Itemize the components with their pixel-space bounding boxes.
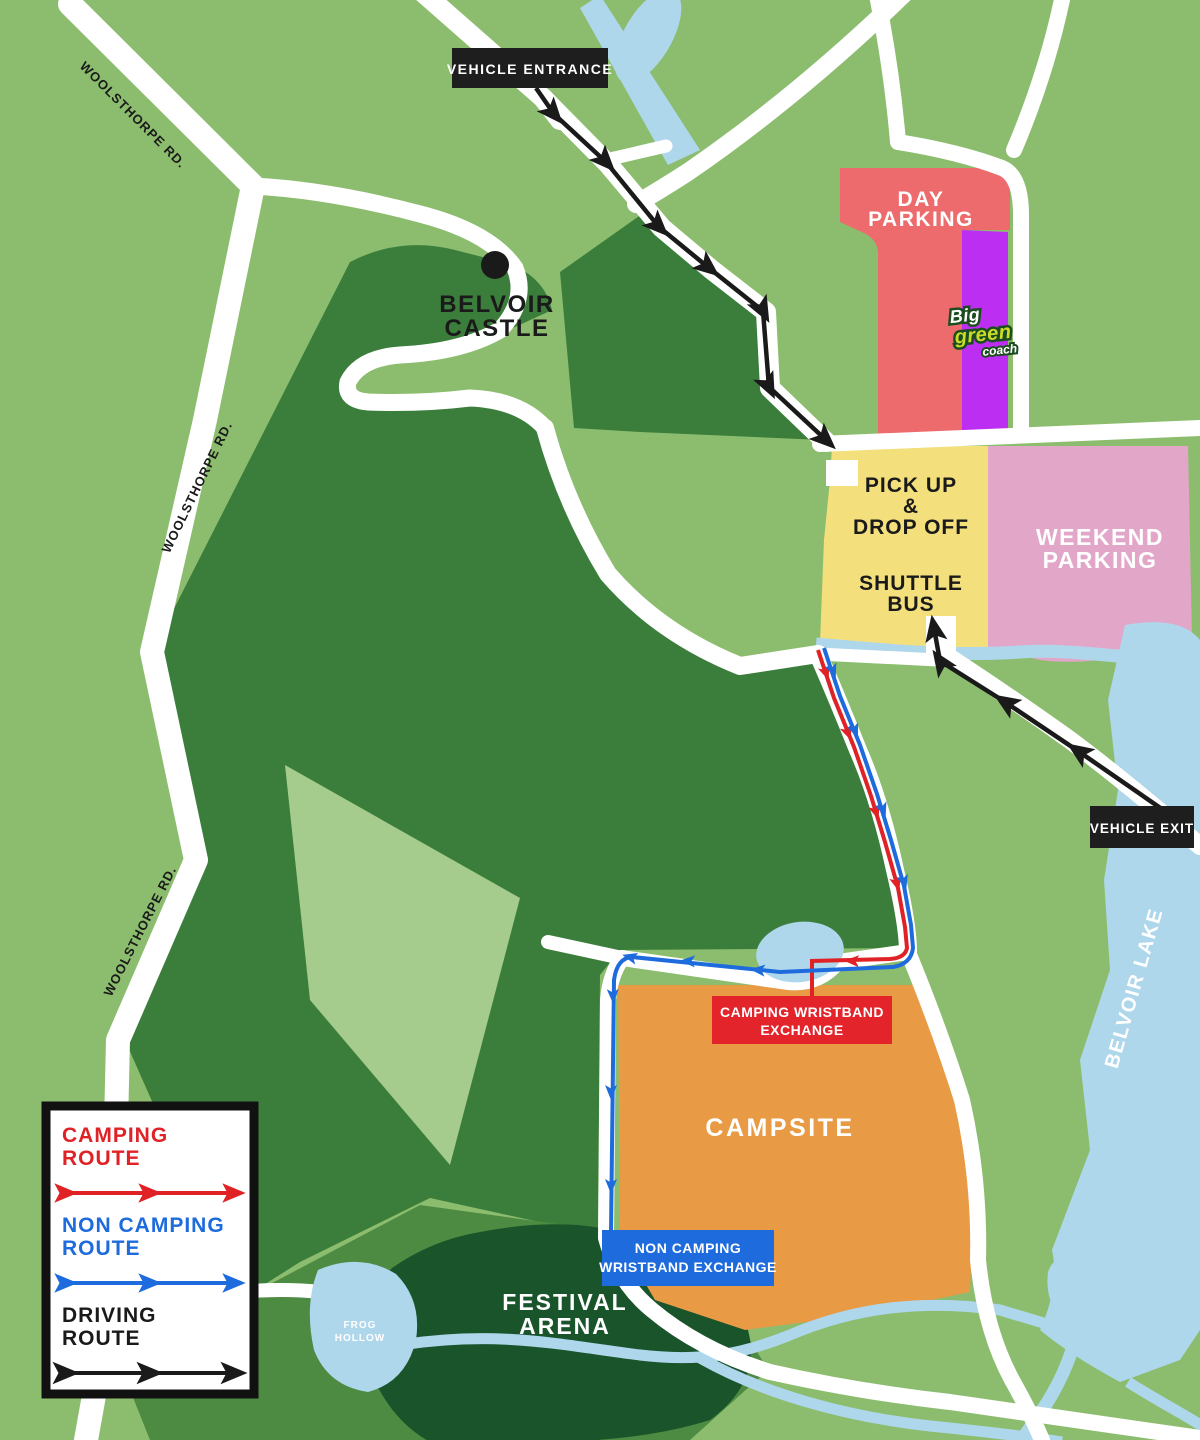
legend-camping-label-line1: CAMPING: [62, 1124, 168, 1147]
legend: CAMPING ROUTE NON CAMPING ROUTE DRIVING …: [46, 1106, 254, 1394]
pickup-label-line3: DROP OFF: [853, 516, 969, 539]
legend-driving-label-line1: DRIVING: [62, 1304, 157, 1327]
non-camping-wristband-label-line1: NON CAMPING: [635, 1240, 742, 1256]
weekend-parking-label-line2: PARKING: [1043, 547, 1158, 573]
legend-non-camping-label-line2: ROUTE: [62, 1237, 141, 1260]
festival-arena-label-line2: ARENA: [519, 1313, 611, 1339]
day-parking-label-line2: PARKING: [868, 208, 974, 231]
vehicle-entrance-label: VEHICLE ENTRANCE: [447, 61, 613, 77]
belvoir-castle-label-line2: CASTLE: [445, 315, 550, 342]
shuttle-bus-label-line2: BUS: [887, 593, 934, 616]
pickup-label-line2: &: [903, 495, 919, 518]
non-camping-wristband-label-line2: WRISTBAND EXCHANGE: [599, 1259, 777, 1275]
shuttle-bus-label-line1: SHUTTLE: [859, 572, 963, 595]
vehicle-exit-label: VEHICLE EXIT: [1090, 821, 1194, 836]
frog-hollow-label-line1: FROG: [344, 1320, 377, 1331]
campsite-label: CAMPSITE: [705, 1114, 854, 1142]
road-exit-connector: [818, 654, 938, 660]
legend-driving-label-line2: ROUTE: [62, 1327, 141, 1350]
pickup-label-line1: PICK UP: [865, 474, 957, 497]
legend-non-camping-label-line1: NON CAMPING: [62, 1214, 225, 1237]
road-stub-pickup-notch: [826, 460, 858, 486]
legend-camping-label-line2: ROUTE: [62, 1147, 141, 1170]
belvoir-castle-dot: [481, 251, 509, 279]
vehicle-entrance-label-box: VEHICLE ENTRANCE: [447, 48, 613, 88]
camping-wristband-box: CAMPING WRISTBAND EXCHANGE: [712, 996, 892, 1044]
non-camping-wristband-box: NON CAMPING WRISTBAND EXCHANGE: [599, 1230, 777, 1286]
festival-site-map: BELVOIR CASTLE DAY PARKING Big green coa…: [0, 0, 1200, 1440]
festival-arena-label-line1: FESTIVAL: [502, 1289, 627, 1315]
camping-wristband-label-line2: EXCHANGE: [760, 1022, 843, 1038]
belvoir-castle-label-line1: BELVOIR: [439, 291, 554, 318]
vehicle-exit-label-box: VEHICLE EXIT: [1090, 806, 1194, 848]
camping-wristband-label-line1: CAMPING WRISTBAND: [720, 1004, 884, 1020]
frog-hollow-label-line2: HOLLOW: [335, 1333, 385, 1344]
